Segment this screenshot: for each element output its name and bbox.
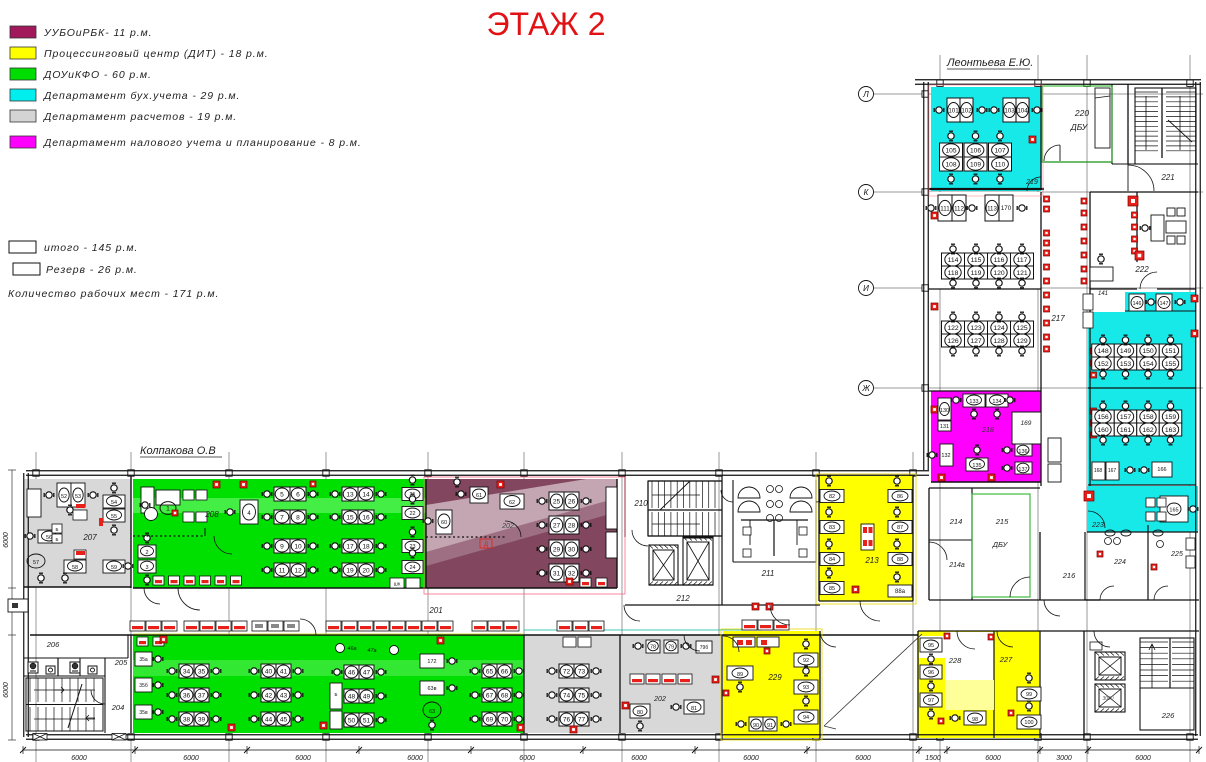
svg-text:6000: 6000: [985, 755, 1001, 762]
svg-text:172: 172: [427, 659, 436, 665]
svg-text:79: 79: [668, 645, 674, 651]
svg-text:109: 109: [970, 161, 981, 168]
svg-text:154: 154: [1142, 361, 1154, 368]
svg-text:65: 65: [486, 668, 494, 675]
svg-text:162: 162: [1142, 427, 1154, 434]
svg-text:84: 84: [829, 557, 835, 563]
svg-text:111: 111: [940, 205, 950, 212]
svg-text:157: 157: [1120, 414, 1132, 421]
svg-text:6000: 6000: [631, 755, 647, 762]
svg-text:9: 9: [280, 543, 284, 550]
svg-text:43: 43: [280, 692, 288, 699]
svg-text:227: 227: [999, 655, 1013, 664]
svg-text:107: 107: [994, 147, 1005, 154]
svg-text:110: 110: [995, 161, 1006, 168]
svg-text:12: 12: [294, 567, 302, 574]
svg-text:155: 155: [1165, 361, 1177, 368]
svg-text:2: 2: [145, 550, 148, 556]
svg-text:35: 35: [198, 668, 206, 675]
svg-text:122: 122: [947, 325, 959, 332]
svg-text:39: 39: [198, 716, 206, 723]
svg-text:131: 131: [940, 424, 949, 430]
svg-text:133: 133: [969, 399, 978, 405]
svg-text:1500: 1500: [925, 755, 941, 762]
svg-text:И: И: [863, 284, 869, 293]
svg-text:Ж: Ж: [861, 384, 870, 393]
svg-text:10: 10: [294, 543, 302, 550]
svg-text:219: 219: [1025, 179, 1038, 186]
svg-text:153: 153: [1120, 361, 1132, 368]
svg-text:59: 59: [111, 565, 117, 571]
svg-text:81: 81: [691, 706, 697, 712]
svg-text:40: 40: [265, 668, 273, 675]
svg-text:37: 37: [198, 692, 206, 699]
svg-text:63в: 63в: [427, 686, 436, 692]
svg-text:93: 93: [803, 685, 809, 691]
svg-text:6000: 6000: [183, 755, 199, 762]
svg-text:94: 94: [803, 715, 809, 721]
svg-text:90: 90: [753, 723, 759, 729]
svg-text:76: 76: [563, 716, 571, 723]
svg-text:125: 125: [1016, 325, 1028, 332]
svg-text:44: 44: [265, 716, 273, 723]
svg-text:128: 128: [993, 338, 1005, 345]
svg-text:108: 108: [945, 161, 956, 168]
svg-text:224: 224: [1113, 559, 1126, 566]
svg-text:Количество рабочих мест - 171: Количество рабочих мест - 171 р.м.: [8, 288, 219, 300]
svg-text:135: 135: [972, 463, 981, 469]
svg-text:22: 22: [409, 511, 415, 517]
svg-text:27: 27: [553, 522, 561, 529]
svg-text:116: 116: [994, 257, 1005, 264]
svg-text:Колпакова О.В: Колпакова О.В: [140, 445, 216, 457]
svg-text:206: 206: [46, 640, 60, 649]
svg-text:ШК: ШК: [394, 582, 401, 587]
svg-text:80: 80: [637, 710, 643, 716]
svg-text:117: 117: [1017, 257, 1028, 264]
svg-text:6000: 6000: [3, 532, 10, 548]
svg-text:105: 105: [945, 147, 956, 154]
svg-text:3000: 3000: [1056, 755, 1072, 762]
svg-text:96: 96: [928, 670, 934, 676]
svg-text:Б: Б: [335, 692, 338, 697]
svg-text:95: 95: [928, 643, 934, 649]
svg-text:79б: 79б: [700, 645, 709, 651]
svg-text:161: 161: [1120, 427, 1132, 434]
svg-text:228: 228: [948, 656, 962, 665]
svg-text:60: 60: [441, 520, 447, 526]
svg-text:Б: Б: [56, 537, 59, 542]
svg-text:35б: 35б: [139, 683, 148, 689]
svg-text:226: 226: [1161, 711, 1175, 720]
svg-text:91: 91: [767, 723, 773, 729]
svg-text:Департамент бух.учета - 29 р.м: Департамент бух.учета - 29 р.м.: [43, 90, 240, 102]
svg-text:8: 8: [296, 514, 300, 521]
svg-text:Л: Л: [862, 90, 869, 99]
svg-text:47а: 47а: [367, 648, 376, 654]
svg-text:Департамент расчетов - 19 р.м: Департамент расчетов - 19 р.м.: [43, 111, 237, 123]
svg-text:216: 216: [1062, 571, 1076, 580]
svg-text:217: 217: [1050, 314, 1065, 323]
svg-text:6000: 6000: [519, 755, 535, 762]
svg-text:212: 212: [675, 594, 690, 603]
svg-text:85: 85: [829, 586, 835, 592]
svg-text:75: 75: [578, 692, 586, 699]
svg-text:ЭТАЖ 2: ЭТАЖ 2: [486, 6, 605, 42]
svg-text:148: 148: [1097, 348, 1109, 355]
svg-text:86: 86: [897, 494, 903, 500]
svg-text:83: 83: [829, 525, 835, 531]
svg-text:160: 160: [1097, 427, 1109, 434]
svg-text:Департамент налового учета и п: Департамент налового учета и планировани…: [43, 137, 362, 149]
svg-text:225: 225: [1170, 551, 1183, 558]
svg-text:53: 53: [75, 494, 81, 500]
svg-text:41: 41: [280, 668, 288, 675]
svg-text:210: 210: [633, 499, 648, 508]
svg-text:70: 70: [501, 716, 509, 723]
svg-text:24: 24: [409, 565, 415, 571]
svg-text:56: 56: [46, 535, 52, 541]
svg-text:119: 119: [971, 270, 982, 277]
svg-text:35а: 35а: [139, 657, 148, 663]
svg-text:34: 34: [183, 668, 191, 675]
svg-text:156: 156: [1097, 414, 1109, 421]
svg-text:221: 221: [1160, 173, 1174, 182]
svg-text:Б: Б: [56, 527, 59, 532]
svg-text:104: 104: [1017, 107, 1028, 114]
svg-text:213: 213: [864, 556, 879, 565]
svg-text:УУБОиРБК- 11 р.м.: УУБОиРБК- 11 р.м.: [43, 27, 152, 39]
svg-text:20: 20: [362, 567, 370, 574]
svg-text:46: 46: [348, 669, 356, 676]
svg-text:46а: 46а: [347, 646, 356, 652]
svg-text:88а: 88а: [895, 589, 906, 595]
svg-text:211: 211: [761, 569, 775, 578]
svg-text:28: 28: [568, 522, 576, 529]
svg-text:26: 26: [568, 498, 576, 505]
svg-text:103: 103: [1004, 107, 1015, 114]
svg-text:7: 7: [280, 514, 284, 521]
svg-text:14: 14: [362, 491, 370, 498]
svg-text:126: 126: [947, 338, 959, 345]
svg-text:169: 169: [1021, 420, 1032, 427]
svg-text:151: 151: [1165, 348, 1177, 355]
svg-text:Резерв - 26 р.м.: Резерв - 26 р.м.: [46, 264, 138, 276]
svg-text:18: 18: [362, 543, 370, 550]
svg-text:114: 114: [948, 257, 959, 264]
svg-text:29: 29: [553, 546, 561, 553]
svg-text:77: 77: [578, 716, 586, 723]
svg-text:167: 167: [1108, 468, 1117, 474]
svg-text:141: 141: [1098, 291, 1108, 297]
svg-text:88: 88: [897, 557, 903, 563]
svg-text:55: 55: [111, 514, 117, 520]
svg-text:147: 147: [1160, 301, 1169, 307]
svg-text:74: 74: [563, 692, 571, 699]
svg-text:25: 25: [553, 498, 561, 505]
svg-text:207: 207: [82, 533, 97, 542]
svg-text:214а: 214а: [948, 562, 965, 569]
svg-text:5: 5: [280, 491, 284, 498]
svg-text:208: 208: [204, 510, 219, 519]
svg-text:6000: 6000: [295, 755, 311, 762]
svg-text:45: 45: [280, 716, 288, 723]
svg-text:223: 223: [1091, 522, 1104, 529]
svg-text:62: 62: [509, 500, 515, 506]
svg-text:ДОУиКФО - 60 р.м.: ДОУиКФО - 60 р.м.: [43, 69, 152, 81]
svg-text:52: 52: [61, 494, 67, 500]
svg-text:136: 136: [1018, 449, 1027, 455]
svg-text:123: 123: [970, 325, 982, 332]
svg-text:106: 106: [970, 147, 981, 154]
svg-text:158: 158: [1142, 414, 1154, 421]
svg-text:30: 30: [568, 546, 576, 553]
svg-text:Д: Д: [484, 542, 488, 548]
svg-text:134: 134: [992, 399, 1001, 405]
svg-text:100: 100: [1024, 720, 1033, 726]
svg-text:68: 68: [501, 692, 509, 699]
svg-text:51: 51: [363, 717, 371, 724]
svg-text:222: 222: [1134, 265, 1149, 274]
svg-text:36: 36: [183, 692, 191, 699]
svg-text:23: 23: [409, 544, 415, 550]
svg-text:63: 63: [429, 709, 435, 715]
svg-text:11: 11: [279, 567, 286, 574]
svg-text:204: 204: [111, 703, 125, 712]
svg-text:146: 146: [1133, 301, 1142, 307]
svg-text:6000: 6000: [743, 755, 759, 762]
svg-text:137: 137: [1018, 467, 1027, 473]
svg-text:6000: 6000: [407, 755, 423, 762]
svg-text:61: 61: [476, 493, 482, 499]
svg-text:67: 67: [486, 692, 494, 699]
svg-text:17: 17: [346, 543, 354, 550]
svg-text:166: 166: [1157, 467, 1166, 473]
svg-text:16: 16: [362, 514, 370, 521]
svg-text:120: 120: [993, 270, 1005, 277]
svg-text:98: 98: [972, 717, 978, 723]
svg-text:229: 229: [767, 673, 782, 682]
svg-text:6000: 6000: [3, 682, 10, 698]
svg-text:итого - 145 р.м.: итого - 145 р.м.: [44, 242, 138, 254]
svg-text:73: 73: [578, 668, 586, 675]
svg-text:163: 163: [1165, 427, 1177, 434]
svg-text:202: 202: [653, 696, 666, 703]
svg-text:129: 129: [1016, 338, 1028, 345]
svg-text:38: 38: [183, 716, 191, 723]
svg-text:3: 3: [145, 565, 148, 571]
svg-text:205: 205: [114, 658, 128, 667]
svg-text:215: 215: [995, 517, 1009, 526]
svg-text:152: 152: [1097, 361, 1109, 368]
svg-text:57: 57: [33, 560, 39, 566]
svg-text:69: 69: [486, 716, 494, 723]
svg-text:102: 102: [961, 107, 972, 114]
svg-text:159: 159: [1165, 414, 1177, 421]
svg-text:ДБУ: ДБУ: [1070, 122, 1089, 132]
svg-text:19: 19: [346, 567, 354, 574]
svg-text:89: 89: [737, 672, 743, 678]
svg-text:13: 13: [346, 491, 354, 498]
svg-text:54: 54: [111, 500, 117, 506]
svg-text:99: 99: [1026, 692, 1032, 698]
svg-text:82: 82: [829, 494, 835, 500]
svg-text:58: 58: [72, 565, 78, 571]
svg-text:92: 92: [803, 658, 809, 664]
svg-text:201: 201: [428, 606, 442, 615]
svg-text:121: 121: [1016, 270, 1028, 277]
svg-text:214: 214: [949, 517, 963, 526]
svg-text:97: 97: [928, 698, 934, 704]
svg-text:1: 1: [166, 505, 170, 512]
svg-text:50: 50: [348, 717, 356, 724]
svg-text:6000: 6000: [1135, 755, 1151, 762]
svg-text:118: 118: [948, 270, 959, 277]
svg-text:3000: 3000: [1102, 696, 1113, 702]
svg-text:150: 150: [1142, 348, 1154, 355]
svg-text:132: 132: [941, 453, 950, 459]
svg-text:168: 168: [1094, 468, 1103, 474]
svg-text:78: 78: [650, 645, 656, 651]
svg-text:48: 48: [348, 693, 356, 700]
svg-text:66: 66: [501, 668, 509, 675]
svg-text:31: 31: [553, 570, 561, 577]
svg-text:112: 112: [954, 205, 964, 212]
svg-text:42: 42: [265, 692, 273, 699]
svg-text:15: 15: [346, 514, 354, 521]
svg-text:220: 220: [1074, 108, 1089, 118]
svg-text:170: 170: [1001, 205, 1012, 212]
svg-text:Леонтьева Е.Ю.: Леонтьева Е.Ю.: [946, 57, 1033, 69]
svg-text:218: 218: [981, 427, 994, 434]
svg-text:Процессинговый центр (ДИТ) -: Процессинговый центр (ДИТ) - 18 р.м.: [44, 48, 269, 60]
svg-text:49: 49: [363, 693, 371, 700]
svg-text:6000: 6000: [71, 755, 87, 762]
svg-text:130: 130: [940, 408, 949, 414]
svg-text:47: 47: [363, 669, 371, 676]
svg-text:149: 149: [1120, 348, 1132, 355]
svg-text:115: 115: [971, 257, 982, 264]
svg-text:6000: 6000: [855, 755, 871, 762]
svg-text:113: 113: [987, 205, 997, 212]
svg-text:202: 202: [501, 523, 514, 530]
svg-text:87: 87: [897, 525, 903, 531]
svg-text:6: 6: [296, 491, 300, 498]
svg-text:127: 127: [970, 338, 982, 345]
svg-text:72: 72: [563, 668, 571, 675]
svg-text:124: 124: [993, 325, 1005, 332]
svg-text:ДБУ: ДБУ: [992, 540, 1009, 549]
svg-text:165: 165: [1169, 508, 1178, 514]
svg-text:32: 32: [568, 570, 576, 577]
svg-text:101: 101: [948, 107, 959, 114]
svg-text:35в: 35в: [139, 710, 148, 716]
